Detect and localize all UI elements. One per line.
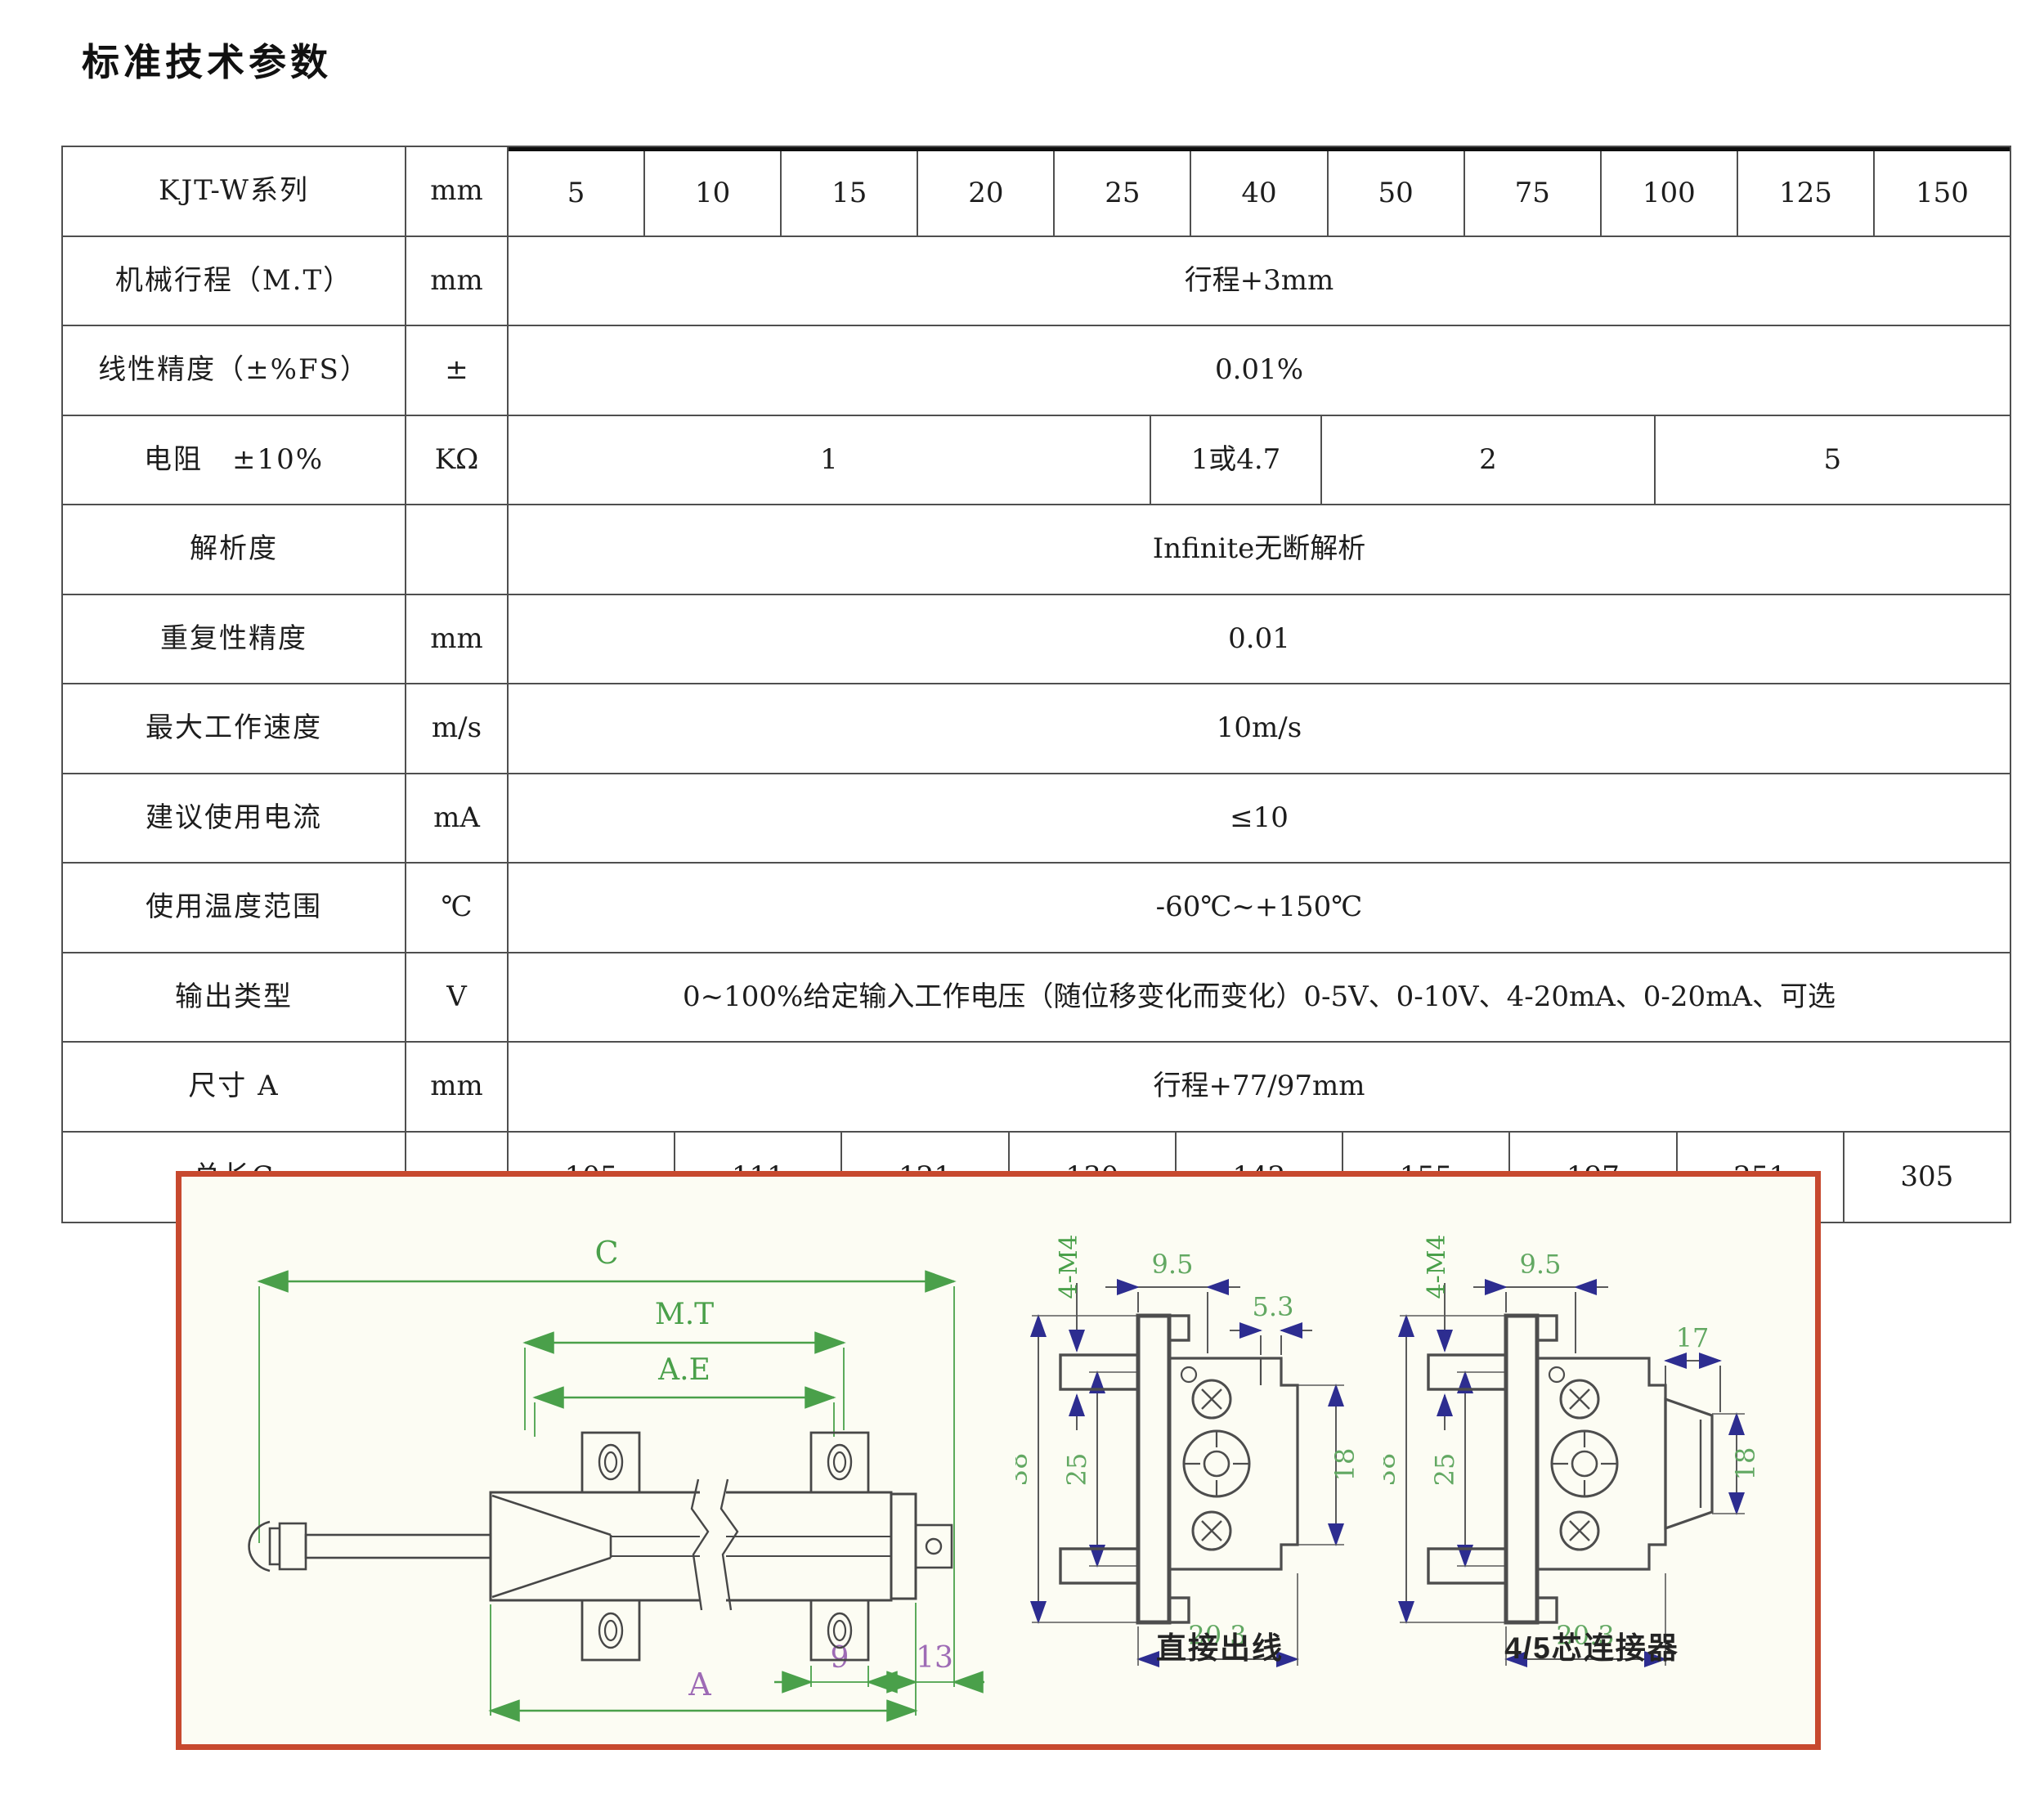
row-unit: mm — [406, 595, 509, 684]
dim-label-38: 38 — [1015, 1453, 1033, 1487]
row-label: 机械行程（M.T） — [63, 237, 406, 325]
dim-label-5p3: 5.3 — [1253, 1291, 1294, 1322]
row-label: 线性精度（±%FS） — [63, 326, 406, 415]
row-unit: mA — [406, 774, 509, 863]
table-row-repeatability: 重复性精度 mm 0.01 — [63, 595, 2010, 685]
length-cell: 305 — [1845, 1133, 2010, 1223]
sensor-body-outline — [249, 1433, 952, 1660]
table-row-dim-a: 尺寸 A mm 行程+77/97mm — [63, 1043, 2010, 1133]
row-unit: m/s — [406, 684, 509, 773]
row-label: 使用温度范围 — [63, 864, 406, 952]
page-title: 标准技术参数 — [82, 33, 332, 87]
value-cell: 1 — [509, 416, 1151, 505]
row-label: 电阻 ±10% — [63, 416, 406, 505]
value-cell: ≤10 — [509, 774, 2010, 863]
table-row-max-speed: 最大工作速度 m/s 10m/s — [63, 684, 2010, 774]
table-row-current: 建议使用电流 mA ≤10 — [63, 774, 2010, 864]
value-cell: Infinite无断解析 — [509, 505, 2010, 594]
dim-label-38: 38 — [1383, 1453, 1401, 1487]
value-cell: 5 — [1656, 416, 2010, 505]
value-cell: 10m/s — [509, 684, 2010, 773]
dim-label-4m4: 4-M4 — [1055, 1234, 1083, 1299]
dimension-drawing-panel: C M.T A.E A 9 13 — [176, 1171, 1821, 1750]
row-unit: KΩ — [406, 416, 509, 505]
row-unit: ℃ — [406, 864, 509, 952]
connector-outline — [1428, 1316, 1712, 1622]
caption-connector: 4/5芯连接器 — [1445, 1623, 1739, 1667]
table-row-mech-travel: 机械行程（M.T） mm 行程+3mm — [63, 237, 2010, 327]
dim-label-25: 25 — [1429, 1453, 1460, 1487]
row-unit: mm — [406, 237, 509, 325]
dim-label-a: A — [688, 1667, 711, 1703]
dim-label-ae: A.E — [657, 1353, 710, 1387]
size-cell: 20 — [918, 151, 1055, 236]
value-cell: 0.01 — [509, 595, 2010, 684]
row-unit: V — [406, 953, 509, 1042]
table-row-output-type: 输出类型 V 0~100%给定输入工作电压（随位移变化而变化）0-5V、0-10… — [63, 953, 2010, 1043]
table-row-linearity: 线性精度（±%FS） ± 0.01% — [63, 326, 2010, 416]
row-label: KJT-W系列 — [63, 147, 406, 236]
side-view-drawing: C M.T A.E A 9 13 — [198, 1191, 1015, 1731]
table-row-temperature: 使用温度范围 ℃ -60℃~+150℃ — [63, 864, 2010, 953]
size-cell: 75 — [1465, 151, 1602, 236]
row-label: 最大工作速度 — [63, 684, 406, 773]
row-label: 输出类型 — [63, 953, 406, 1042]
dim-label-9: 9 — [831, 1641, 849, 1675]
row-label: 建议使用电流 — [63, 774, 406, 863]
row-label: 解析度 — [63, 505, 406, 594]
row-unit: ± — [406, 326, 509, 415]
spec-table: KJT-W系列 mm 5 10 15 20 25 40 50 75 100 12… — [61, 146, 2011, 1223]
size-cell: 5 — [509, 151, 645, 236]
caption-direct-outlet: 直接出线 — [1097, 1623, 1342, 1667]
row-label: 尺寸 A — [63, 1043, 406, 1131]
value-cell: 行程+77/97mm — [509, 1043, 2010, 1131]
row-label: 重复性精度 — [63, 595, 406, 684]
value-cell: 0.01% — [509, 326, 2010, 415]
dim-label-9p5: 9.5 — [1152, 1249, 1194, 1280]
dim-label-13: 13 — [916, 1641, 953, 1675]
size-cell: 125 — [1738, 151, 1875, 236]
row-unit: mm — [406, 147, 509, 236]
dim-label-25: 25 — [1061, 1453, 1092, 1487]
table-row-resolution: 解析度 Infinite无断解析 — [63, 505, 2010, 595]
value-cell: 1或4.7 — [1151, 416, 1322, 505]
value-cell: -60℃~+150℃ — [509, 864, 2010, 952]
dim-label-4m4: 4-M4 — [1423, 1234, 1451, 1299]
dim-label-mt: M.T — [655, 1298, 714, 1331]
table-row-series: KJT-W系列 mm 5 10 15 20 25 40 50 75 100 12… — [63, 147, 2010, 237]
value-cell: 2 — [1322, 416, 1656, 505]
dim-label-c: C — [594, 1235, 618, 1271]
size-cell: 40 — [1191, 151, 1328, 236]
dim-label-18: 18 — [1329, 1448, 1360, 1482]
size-cell: 15 — [782, 151, 918, 236]
dim-label-18: 18 — [1730, 1447, 1761, 1481]
size-cell: 25 — [1055, 151, 1191, 236]
value-cell: 0~100%给定输入工作电压（随位移变化而变化）0-5V、0-10V、4-20m… — [509, 953, 2010, 1042]
value-cell: 行程+3mm — [509, 237, 2010, 325]
dim-label-17: 17 — [1676, 1322, 1710, 1353]
table-row-resistance: 电阻 ±10% KΩ 1 1或4.7 2 5 — [63, 416, 2010, 506]
size-cell: 10 — [645, 151, 782, 236]
row-unit — [406, 505, 509, 594]
size-cell: 50 — [1329, 151, 1465, 236]
direct-outlet-outline — [1060, 1316, 1298, 1622]
size-cell: 100 — [1602, 151, 1738, 236]
dim-label-9p5: 9.5 — [1520, 1249, 1562, 1280]
row-unit: mm — [406, 1043, 509, 1131]
size-cell: 150 — [1875, 151, 2010, 236]
